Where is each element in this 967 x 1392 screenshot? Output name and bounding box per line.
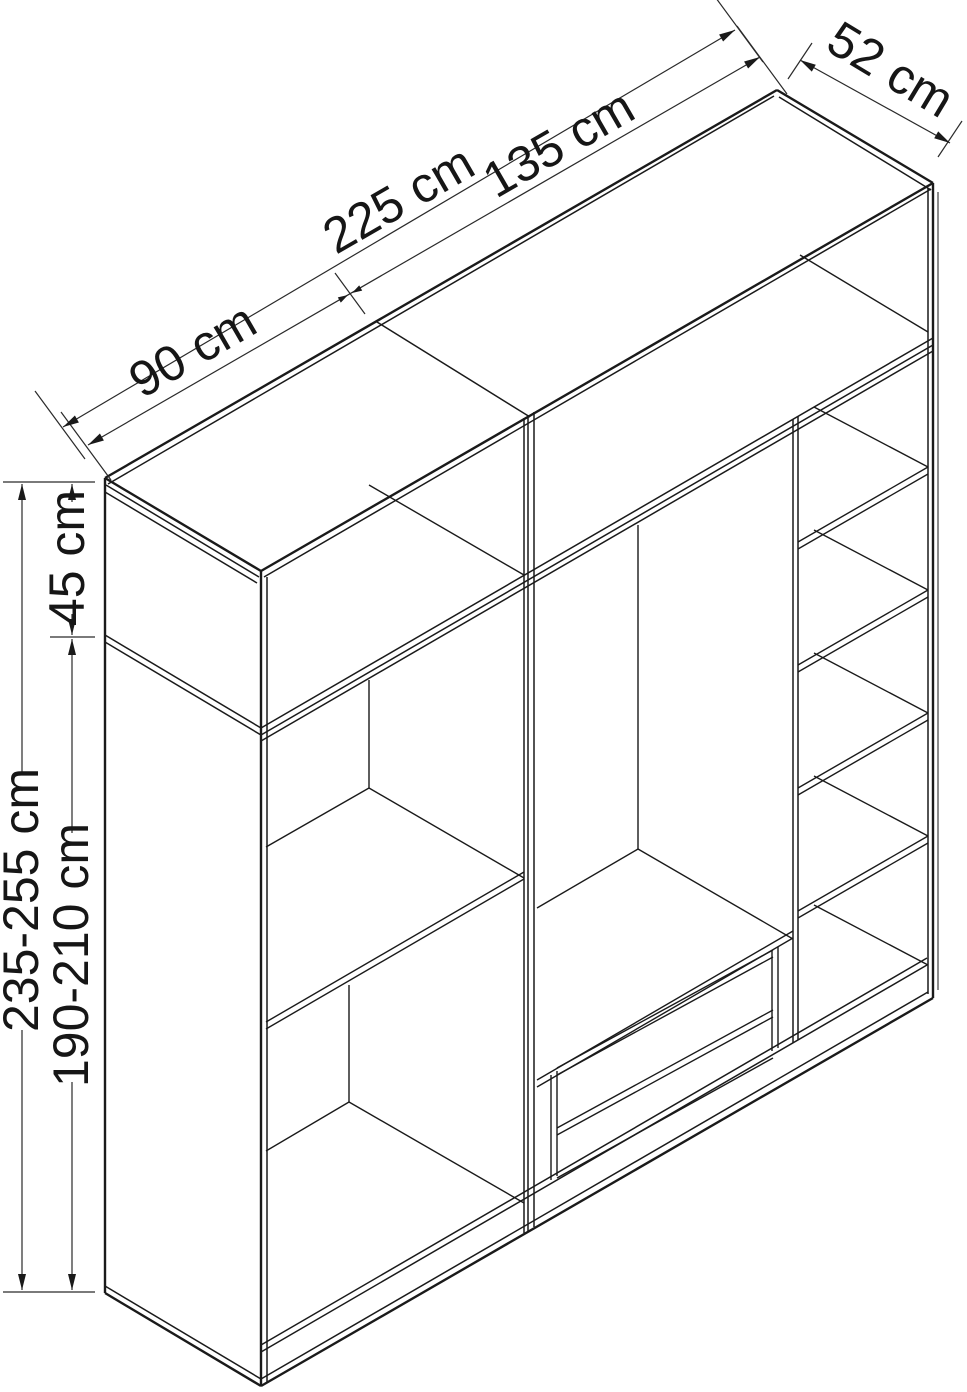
right-shelf-column	[798, 255, 928, 965]
wardrobe-outline	[105, 90, 933, 1386]
dim-label-lower-section-height: 190-210 cm	[43, 823, 99, 1087]
dim-label-right-module-width: 135 cm	[473, 78, 643, 208]
dim-label-total-width: 225 cm	[313, 134, 483, 264]
middle-compartment	[537, 525, 793, 1087]
wardrobe-isometric-drawing: 90 cm 225 cm 135 cm 52 cm 45 cm 235-255 …	[0, 0, 967, 1392]
dim-arrowheads	[18, 30, 950, 1290]
dim-label-top-section-height: 45 cm	[39, 490, 95, 626]
left-module-shelves	[266, 485, 524, 1203]
technical-drawing-page: 90 cm 225 cm 135 cm 52 cm 45 cm 235-255 …	[0, 0, 967, 1392]
dim-label-left-module-width: 90 cm	[120, 292, 266, 409]
dim-label-total-height: 235-255 cm	[0, 768, 49, 1032]
panel-edges	[105, 96, 938, 1383]
